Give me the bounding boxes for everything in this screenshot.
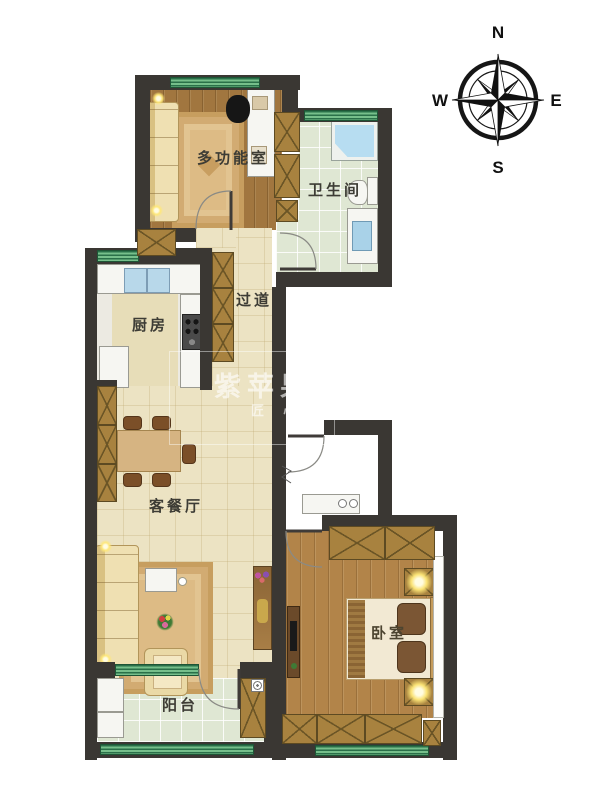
compass-icon: N S W E [428, 20, 568, 180]
room-label-living-dining: 客餐厅 [149, 500, 203, 515]
floor-plan: 多功能室 卫生间 过道 厨房 客餐厅 卧室 阳台 紫苹果 匠 心 N S W [0, 0, 616, 800]
door-arc [199, 669, 239, 709]
watermark-brand: 紫苹果 [214, 374, 313, 401]
compass-label-south: S [492, 158, 503, 177]
room-label-balcony: 阳台 [162, 699, 198, 714]
door-arc [280, 233, 316, 269]
compass-label-west: W [432, 91, 449, 110]
room-label-hallway: 过道 [236, 294, 272, 309]
room-label-multi-function: 多功能室 [197, 152, 269, 167]
door-arc [286, 531, 322, 567]
room-label-kitchen: 厨房 [132, 319, 168, 334]
wall-break-symbol [282, 466, 291, 483]
room-label-bathroom: 卫生间 [308, 184, 362, 199]
compass-label-north: N [492, 23, 504, 42]
room-label-bedroom: 卧室 [371, 627, 407, 642]
watermark-tagline: 匠 心 [251, 404, 304, 417]
door-arc [196, 191, 231, 229]
compass-label-east: E [550, 91, 561, 110]
